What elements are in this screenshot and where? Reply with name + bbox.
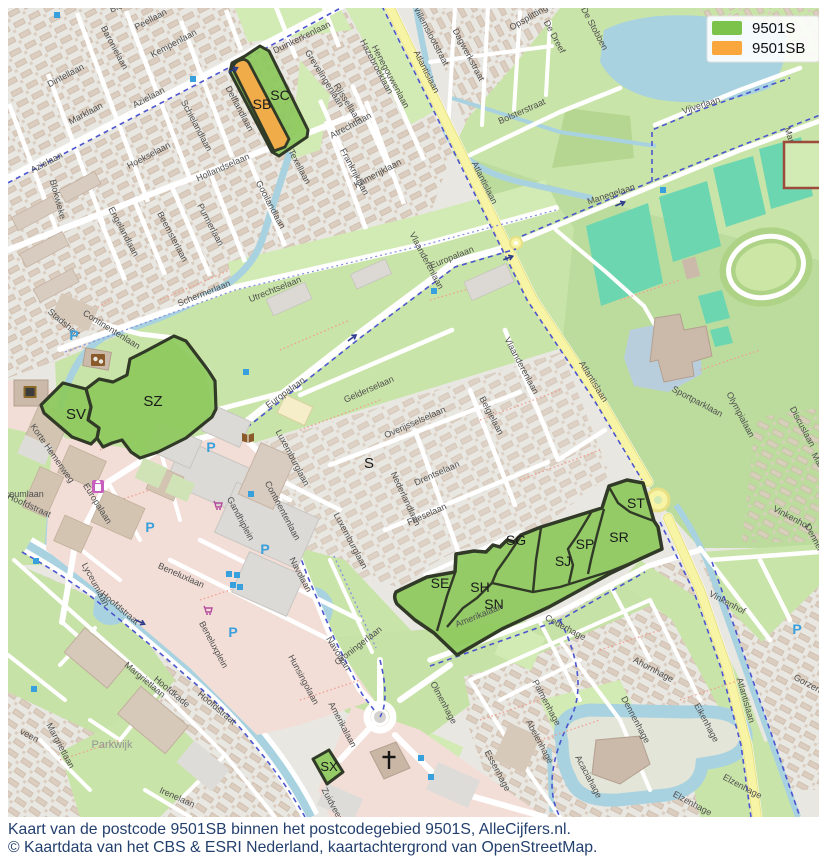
svg-text:P: P xyxy=(260,541,269,557)
svg-text:S: S xyxy=(364,455,374,472)
svg-text:SX: SX xyxy=(320,759,338,774)
svg-text:P: P xyxy=(228,624,237,640)
svg-text:SB: SB xyxy=(253,96,272,112)
svg-text:SP: SP xyxy=(576,536,595,552)
svg-text:P: P xyxy=(145,519,154,535)
svg-text:SJ: SJ xyxy=(555,553,571,569)
svg-text:P: P xyxy=(69,327,78,343)
svg-text:ST: ST xyxy=(627,495,645,511)
svg-text:SC: SC xyxy=(270,87,289,103)
svg-text:SZ: SZ xyxy=(143,393,162,410)
svg-text:9501SB: 9501SB xyxy=(752,40,805,57)
svg-text:SH: SH xyxy=(470,579,489,595)
svg-text:9501S: 9501S xyxy=(752,20,795,37)
svg-text:Kaart van de postcode 9501SB b: Kaart van de postcode 9501SB binnen het … xyxy=(8,821,571,838)
svg-text:SE: SE xyxy=(431,575,450,591)
svg-text:P: P xyxy=(792,621,801,637)
svg-text:P: P xyxy=(206,439,215,455)
svg-text:yceumlaan: yceumlaan xyxy=(0,489,44,499)
svg-text:SG: SG xyxy=(506,532,526,548)
svg-text:© Kaartdata van het CBS & ESRI: © Kaartdata van het CBS & ESRI Nederland… xyxy=(8,839,597,856)
svg-text:Parkwijk: Parkwijk xyxy=(92,739,133,751)
svg-text:SV: SV xyxy=(66,406,86,423)
svg-text:SR: SR xyxy=(609,529,628,545)
